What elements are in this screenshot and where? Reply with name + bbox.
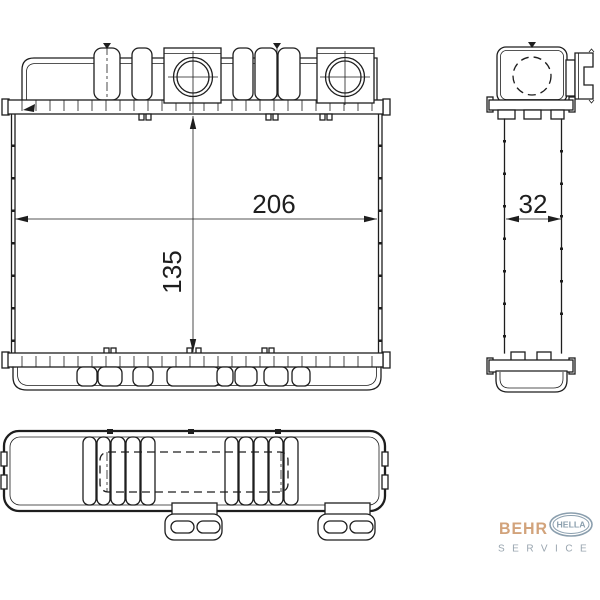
dimension-width: 206 — [15, 189, 377, 222]
side-bottom-tank — [487, 352, 575, 392]
core-left-side-plate — [12, 103, 16, 367]
core-right-side-plate — [379, 103, 383, 367]
side-top-tank — [497, 42, 567, 104]
dimension-height: 135 — [157, 116, 196, 352]
outlet-port — [317, 48, 374, 105]
brand-logo: BEHR HELLA SERVICE — [498, 513, 594, 555]
side-core-column — [505, 119, 562, 353]
bottom-tank — [13, 367, 381, 390]
dimension-depth: 32 — [506, 189, 561, 222]
dimension-width-label: 206 — [252, 189, 295, 219]
pipe-connector — [566, 49, 594, 103]
centerline-tick-right — [273, 43, 281, 49]
dimension-height-label: 135 — [157, 250, 187, 293]
mounting-bracket-right — [318, 503, 375, 540]
service-label: SERVICE — [498, 544, 594, 555]
dimension-depth-label: 32 — [519, 189, 548, 219]
bottom-header-plate — [2, 348, 390, 368]
hella-wordmark: HELLA — [557, 520, 586, 530]
mounting-bracket-left — [165, 503, 222, 540]
behr-wordmark: BEHR — [499, 519, 548, 538]
bottom-view-outline — [4, 431, 385, 511]
heater-core-technical-drawing: 206 135 32 — [0, 0, 600, 600]
rib-bars — [83, 437, 298, 505]
bottom-view — [1, 429, 388, 540]
inlet-port — [164, 48, 221, 113]
front-view — [2, 43, 390, 390]
side-top-header — [487, 97, 575, 119]
technical-drawing-page: 206 135 32 — [0, 0, 600, 600]
